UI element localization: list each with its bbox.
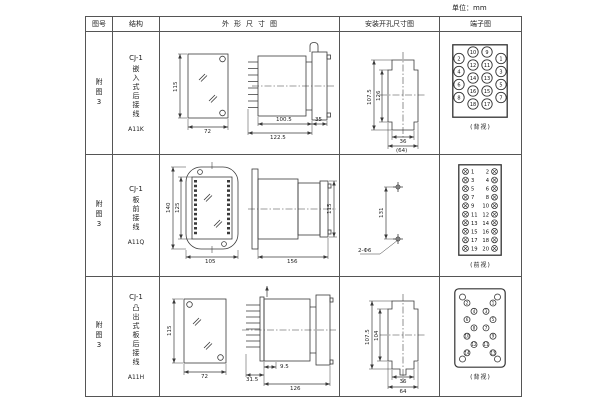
svg-text:9: 9 xyxy=(485,50,488,56)
svg-text:7: 7 xyxy=(471,195,474,201)
terminal-cell-r3: 2143658710912111413 (背视) xyxy=(440,277,521,396)
dim-label: 2-Φ6 xyxy=(358,248,371,254)
structure-desc-r2: 板前接线 xyxy=(131,196,141,232)
mounting-cell-r2: 131 2-Φ6 xyxy=(340,155,440,277)
outline-cell-r3: 115 72 9.5 31.5 126 xyxy=(160,277,340,396)
svg-text:13: 13 xyxy=(471,221,478,227)
structure-desc-r1: 嵌入式后接线 xyxy=(131,65,141,119)
outline-cell-r1: 115 72 100.5 35 122.5 xyxy=(160,32,340,155)
outline-cell-r2: 140 125 105 156 115 xyxy=(160,155,340,277)
dim-label: 64 xyxy=(400,389,407,395)
svg-text:1: 1 xyxy=(471,170,474,176)
mounting-cell-r3: 107.5 104 36 64 xyxy=(340,277,440,396)
dim-label: (64) xyxy=(396,148,407,154)
dim-label: 131 xyxy=(379,208,385,219)
dim-label: 126 xyxy=(290,386,301,392)
spec-table: 图号 结构 外形尺寸图 安装开孔尺寸图 端子图 附图3 CJ-1 嵌入式后接线 … xyxy=(85,16,522,397)
svg-text:2: 2 xyxy=(466,301,469,306)
svg-text:16: 16 xyxy=(482,229,489,235)
dim-label: 104 xyxy=(374,331,380,342)
figure-number-r3: 附图3 xyxy=(94,321,104,352)
svg-text:13: 13 xyxy=(484,76,490,82)
dim-label: 115 xyxy=(167,326,173,337)
dim-label: 72 xyxy=(204,129,211,135)
svg-text:3: 3 xyxy=(471,178,474,184)
svg-text:12: 12 xyxy=(482,212,489,218)
structure-cell-r3: CJ-1 凸出式板后接线 A11H xyxy=(113,277,160,396)
svg-text:7: 7 xyxy=(485,325,488,330)
header-outline: 外形尺寸图 xyxy=(217,19,282,29)
mounting-cell-r1: 107.5 126 36 (64) xyxy=(340,32,440,155)
svg-text:5: 5 xyxy=(499,82,502,88)
svg-text:8: 8 xyxy=(486,195,489,201)
terminal-cell-r1: 246810121416189111315171357 (背视) xyxy=(440,32,521,155)
svg-text:4: 4 xyxy=(473,309,476,314)
dim-label: 107.5 xyxy=(365,329,371,345)
svg-text:8: 8 xyxy=(457,95,460,101)
svg-text:5: 5 xyxy=(492,317,495,322)
dim-label: 115 xyxy=(327,204,333,215)
svg-text:20: 20 xyxy=(482,246,489,252)
svg-text:11: 11 xyxy=(483,342,489,347)
outline-drawing-r1 xyxy=(160,32,340,155)
svg-text:1: 1 xyxy=(499,56,502,62)
svg-text:15: 15 xyxy=(484,89,490,95)
dim-label: 9.5 xyxy=(280,364,289,370)
dim-label: 36 xyxy=(400,139,407,145)
structure-cell-r2: CJ-1 板前接线 A11Q xyxy=(113,155,160,277)
dim-label: 126 xyxy=(376,91,382,102)
dim-label: 125 xyxy=(175,203,181,214)
terminal-view-label: (背视) xyxy=(440,372,521,381)
dim-label: 36 xyxy=(400,379,407,385)
svg-text:2: 2 xyxy=(486,170,489,176)
svg-text:9: 9 xyxy=(492,334,495,339)
svg-text:4: 4 xyxy=(486,178,490,184)
svg-text:19: 19 xyxy=(471,246,478,252)
datasheet-page: 单位：mm 图号 结构 外形尺寸图 安装开孔尺寸图 端子图 附图3 CJ-1 嵌… xyxy=(0,0,600,400)
dim-label: 105 xyxy=(205,259,216,265)
header-mounting: 安装开孔尺寸图 xyxy=(365,19,414,29)
svg-text:12: 12 xyxy=(471,342,477,347)
terminal-cell-r2: 1234567891011121314151617181920 (前视) xyxy=(440,155,521,277)
dim-label: 72 xyxy=(201,374,208,380)
dim-label: 107.5 xyxy=(367,89,373,105)
structure-desc-r3: 凸出式板后接线 xyxy=(131,304,141,367)
svg-text:18: 18 xyxy=(482,238,489,244)
structure-code-r2: A11Q xyxy=(128,239,144,246)
svg-text:11: 11 xyxy=(471,212,478,218)
svg-text:13: 13 xyxy=(490,350,496,355)
svg-text:10: 10 xyxy=(482,204,489,210)
outline-drawing-r2 xyxy=(160,155,340,277)
terminal-view-label: (背视) xyxy=(440,122,521,131)
svg-text:3: 3 xyxy=(499,69,502,75)
structure-code-r1: A11K xyxy=(128,126,144,133)
svg-text:17: 17 xyxy=(471,238,478,244)
svg-text:2: 2 xyxy=(457,56,460,62)
mounting-drawing-r3 xyxy=(340,277,440,396)
svg-text:6: 6 xyxy=(466,317,469,322)
dim-label: 115 xyxy=(173,82,179,93)
svg-text:15: 15 xyxy=(471,229,478,235)
svg-text:1: 1 xyxy=(492,301,495,306)
model-r3: CJ-1 xyxy=(129,293,143,301)
dim-label: 31.5 xyxy=(246,377,258,383)
structure-code-r3: A11H xyxy=(128,374,144,381)
svg-text:6: 6 xyxy=(457,82,460,88)
structure-cell-r1: CJ-1 嵌入式后接线 A11K xyxy=(113,32,160,155)
svg-text:8: 8 xyxy=(473,325,476,330)
mounting-drawing-r2 xyxy=(340,155,440,277)
header-terminal: 端子图 xyxy=(470,19,491,29)
figure-number-r1: 附图3 xyxy=(94,78,104,109)
svg-text:12: 12 xyxy=(470,63,476,69)
svg-text:7: 7 xyxy=(499,95,502,101)
svg-text:14: 14 xyxy=(464,350,470,355)
model-r1: CJ-1 xyxy=(129,54,143,62)
mounting-drawing-r1 xyxy=(340,32,440,155)
dim-label: 35 xyxy=(315,117,322,123)
svg-text:6: 6 xyxy=(486,187,489,193)
dim-label: 100.5 xyxy=(276,117,292,123)
svg-text:10: 10 xyxy=(464,334,470,339)
svg-text:17: 17 xyxy=(484,102,490,108)
svg-text:14: 14 xyxy=(470,76,476,82)
figure-number-r2: 附图3 xyxy=(94,200,104,231)
dim-label: 140 xyxy=(166,203,172,214)
svg-text:16: 16 xyxy=(470,89,476,95)
terminal-view-label: (前视) xyxy=(440,260,521,269)
svg-text:10: 10 xyxy=(470,50,476,56)
svg-text:18: 18 xyxy=(470,102,476,108)
dim-label: 122.5 xyxy=(270,135,286,141)
header-structure: 结构 xyxy=(129,19,143,29)
svg-text:9: 9 xyxy=(471,204,474,210)
unit-label: 单位：mm xyxy=(452,3,487,13)
svg-text:14: 14 xyxy=(482,221,489,227)
header-figure: 图号 xyxy=(92,19,106,29)
svg-text:11: 11 xyxy=(484,63,490,69)
dim-label: 156 xyxy=(287,259,298,265)
model-r2: CJ-1 xyxy=(129,185,143,193)
svg-text:5: 5 xyxy=(471,187,474,193)
svg-text:3: 3 xyxy=(485,309,488,314)
svg-text:4: 4 xyxy=(457,69,460,75)
